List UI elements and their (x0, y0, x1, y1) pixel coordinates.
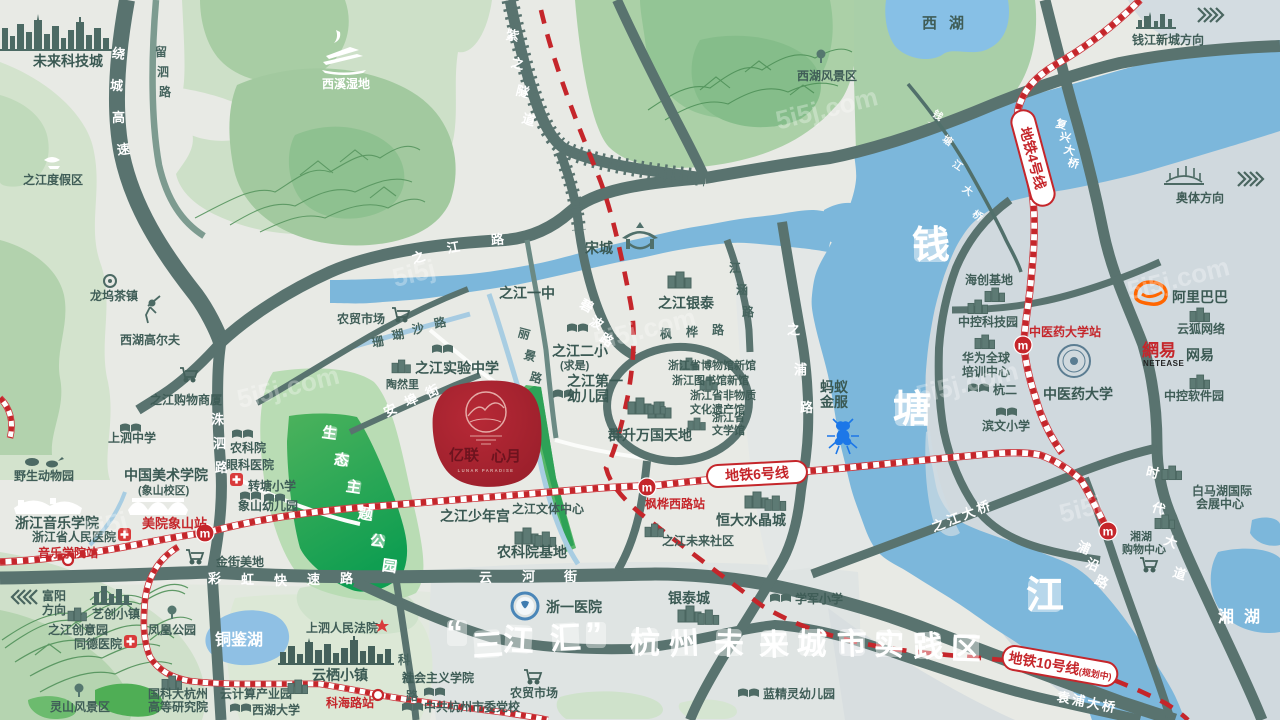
svg-text:学军小学: 学军小学 (795, 591, 843, 606)
svg-text:灵山风景区: 灵山风景区 (50, 699, 110, 714)
svg-text:之江创意园: 之江创意园 (48, 622, 108, 637)
svg-text:钱江新城方向: 钱江新城方向 (1132, 32, 1204, 47)
svg-text:地铁6号线: 地铁6号线 (725, 464, 790, 483)
svg-text:市: 市 (836, 626, 867, 661)
svg-text:网易: 网易 (1186, 347, 1214, 363)
svg-text:会展中心: 会展中心 (1196, 496, 1244, 511)
svg-text:之江未来社区: 之江未来社区 (662, 533, 734, 548)
svg-text:园: 园 (381, 557, 398, 576)
svg-text:中控科技园: 中控科技园 (958, 314, 1018, 329)
svg-text:龙坞茶镇: 龙坞茶镇 (90, 288, 138, 303)
svg-text:富阳: 富阳 (42, 588, 66, 603)
svg-text:国科大杭州: 国科大杭州 (148, 686, 208, 701)
svg-text:浙江省非物质: 浙江省非物质 (690, 388, 756, 402)
svg-text:西湖: 西湖 (922, 15, 976, 32)
svg-text:海创基地: 海创基地 (965, 272, 1013, 287)
svg-text:速: 速 (116, 141, 131, 158)
svg-text:美院象山站: 美院象山站 (142, 516, 207, 531)
svg-text:中共杭州市委党校: 中共杭州市委党校 (424, 699, 521, 714)
svg-text:西湖风景区: 西湖风景区 (797, 68, 857, 83)
svg-text:浙江图书馆新馆: 浙江图书馆新馆 (672, 373, 749, 387)
svg-text:之江一中: 之江一中 (499, 285, 555, 301)
svg-text:西湖高尔夫: 西湖高尔夫 (120, 332, 181, 347)
svg-text:生: 生 (321, 423, 338, 443)
svg-text:LUNAR PARADISE: LUNAR PARADISE (458, 468, 515, 473)
svg-text:湘湖: 湘湖 (1130, 529, 1152, 543)
svg-text:(象山校区): (象山校区) (138, 483, 190, 497)
svg-text:NETEASE: NETEASE (1143, 359, 1184, 368)
svg-text:音乐学院站: 音乐学院站 (38, 545, 98, 560)
svg-text:中国美术学院: 中国美术学院 (124, 467, 208, 483)
svg-text:白马湖国际: 白马湖国际 (1192, 483, 1252, 498)
svg-text:彩: 彩 (207, 571, 221, 586)
svg-text:农贸市场: 农贸市场 (336, 311, 385, 326)
svg-text:泗: 泗 (213, 436, 226, 451)
svg-text:杭: 杭 (629, 625, 660, 660)
svg-text:眼科医院: 眼科医院 (226, 457, 274, 472)
svg-text:上泗中学: 上泗中学 (108, 430, 156, 445)
svg-text:之江实验中学: 之江实验中学 (415, 360, 499, 376)
svg-text:上泗人民法院: 上泗人民法院 (306, 620, 378, 635)
svg-text:奥体方向: 奥体方向 (1176, 190, 1224, 205)
svg-text:象山幼儿园: 象山幼儿园 (238, 498, 298, 513)
svg-text:农贸市场: 农贸市场 (509, 685, 558, 700)
svg-text:之江文体中心: 之江文体中心 (512, 501, 584, 516)
svg-text:银泰城: 银泰城 (668, 590, 710, 606)
svg-text:科: 科 (398, 652, 410, 667)
svg-text:农科院基地: 农科院基地 (496, 544, 567, 560)
svg-text:主: 主 (345, 477, 362, 497)
svg-text:金服: 金服 (819, 394, 849, 410)
svg-text:路: 路 (159, 84, 172, 99)
svg-text:”: ” (585, 616, 602, 654)
svg-text:枫桦西路站: 枫桦西路站 (645, 496, 705, 511)
svg-text:恒大水晶城: 恒大水晶城 (716, 512, 786, 528)
svg-text:钱: 钱 (912, 225, 950, 267)
svg-text:方向: 方向 (42, 602, 66, 617)
svg-text:转塘小学: 转塘小学 (248, 478, 296, 493)
svg-text:区: 区 (950, 632, 981, 666)
svg-text:之江第一: 之江第一 (567, 373, 623, 389)
svg-text:三: 三 (471, 627, 504, 664)
svg-text:绕: 绕 (111, 45, 126, 62)
svg-text:野生动物园: 野生动物园 (14, 468, 74, 483)
svg-text:来: 来 (759, 628, 790, 662)
svg-text:涵: 涵 (736, 283, 748, 297)
svg-text:浦: 浦 (794, 362, 807, 377)
svg-text:江: 江 (729, 260, 741, 275)
svg-text:金街美地: 金街美地 (215, 554, 264, 569)
svg-text:艺创小镇: 艺创小镇 (92, 606, 140, 621)
svg-text:路: 路 (340, 571, 354, 586)
svg-text:之江购物商厦: 之江购物商厦 (150, 392, 223, 407)
svg-text:践: 践 (912, 630, 944, 665)
svg-text:同德医院: 同德医院 (74, 636, 122, 651)
svg-text:铜鉴湖: 铜鉴湖 (215, 630, 263, 649)
svg-text:滨文小学: 滨文小学 (982, 418, 1030, 433)
svg-text:浦: 浦 (1071, 692, 1086, 709)
svg-text:中医药大学站: 中医药大学站 (1029, 324, 1101, 339)
svg-text:群升万国天地: 群升万国天地 (607, 427, 692, 443)
svg-text:亿联: 亿联 (449, 446, 480, 464)
svg-text:态: 态 (333, 450, 350, 470)
svg-text:云计算产业园: 云计算产业园 (220, 686, 292, 701)
svg-text:州: 州 (668, 627, 700, 662)
svg-text:中控软件园: 中控软件园 (1164, 388, 1224, 403)
svg-text:云狐网络: 云狐网络 (1177, 321, 1225, 336)
svg-text:幼儿园: 幼儿园 (567, 388, 609, 404)
svg-text:蚂蚁: 蚂蚁 (820, 379, 849, 395)
svg-text:之江少年宫: 之江少年宫 (440, 508, 510, 524)
svg-text:速: 速 (307, 572, 320, 587)
svg-text:江: 江 (502, 622, 535, 659)
svg-text:农科院: 农科院 (229, 440, 266, 455)
svg-text:城: 城 (796, 627, 828, 662)
svg-text:高: 高 (112, 110, 125, 125)
svg-text:快: 快 (274, 573, 288, 588)
svg-text:浙一医院: 浙一医院 (546, 599, 602, 615)
svg-text:大: 大 (1086, 695, 1101, 712)
svg-text:(求是): (求是) (560, 358, 590, 372)
svg-text:泗: 泗 (157, 64, 169, 79)
svg-text:江: 江 (1026, 575, 1064, 617)
svg-text:社会主义学院: 社会主义学院 (401, 670, 474, 685)
svg-text:城: 城 (110, 78, 124, 94)
svg-text:蓝精灵幼儿园: 蓝精灵幼儿园 (763, 686, 835, 701)
svg-text:未来科技城: 未来科技城 (33, 53, 103, 69)
svg-text:河: 河 (522, 569, 535, 584)
svg-text:路: 路 (490, 231, 505, 247)
svg-text:路: 路 (800, 400, 814, 415)
svg-text:中医药大学: 中医药大学 (1043, 386, 1113, 402)
svg-text:之: 之 (787, 322, 800, 337)
svg-text:实: 实 (873, 627, 904, 662)
svg-text:凤凰公园: 凤凰公园 (148, 623, 196, 637)
svg-text:路: 路 (406, 688, 419, 703)
svg-text:虹: 虹 (241, 572, 254, 587)
svg-text:街: 街 (563, 569, 577, 584)
svg-text:“: “ (446, 614, 463, 652)
svg-text:湘湖: 湘湖 (1218, 607, 1270, 626)
svg-text:紫: 紫 (505, 27, 520, 44)
svg-text:云栖小镇: 云栖小镇 (312, 667, 368, 683)
svg-text:汇: 汇 (549, 620, 582, 657)
svg-text:留: 留 (155, 44, 167, 59)
svg-text:網易: 網易 (1142, 340, 1176, 360)
svg-text:公: 公 (369, 532, 386, 551)
svg-text:心月: 心月 (491, 448, 521, 465)
svg-text:路: 路 (742, 304, 755, 319)
svg-text:浙江省博物馆新馆: 浙江省博物馆新馆 (668, 358, 756, 372)
svg-text:宋城: 宋城 (584, 240, 613, 256)
svg-text:路: 路 (712, 322, 725, 337)
svg-text:购物中心: 购物中心 (1122, 542, 1166, 556)
svg-text:陶然里: 陶然里 (386, 377, 419, 391)
svg-text:洙: 洙 (211, 412, 225, 427)
svg-text:云: 云 (479, 570, 492, 585)
svg-text:西溪湿地: 西溪湿地 (322, 76, 370, 91)
svg-text:科海路站: 科海路站 (326, 695, 374, 710)
svg-text:未: 未 (713, 627, 744, 661)
svg-text:浙江省: 浙江省 (712, 410, 745, 424)
svg-text:文学馆: 文学馆 (712, 423, 745, 437)
svg-text:西湖大学: 西湖大学 (252, 702, 300, 717)
svg-text:江: 江 (446, 239, 461, 256)
svg-text:高等研究院: 高等研究院 (148, 699, 208, 714)
svg-text:之江度假区: 之江度假区 (23, 172, 83, 187)
